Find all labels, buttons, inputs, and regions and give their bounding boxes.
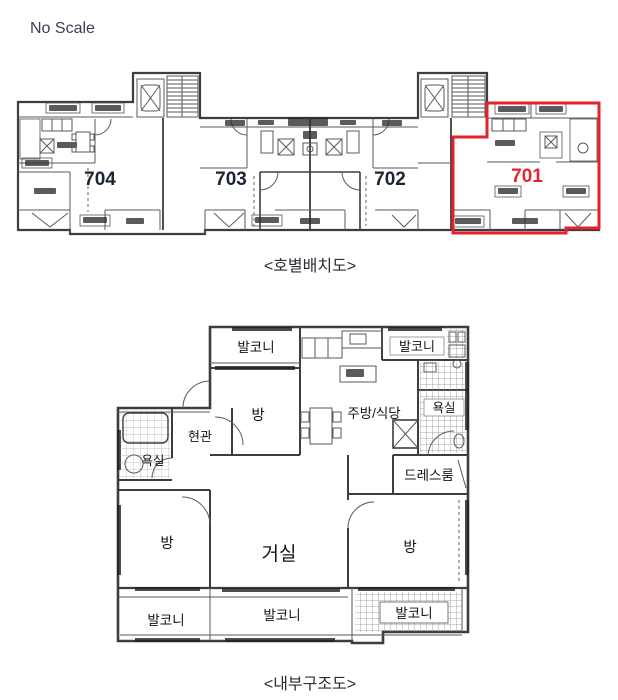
room-label-bathroom-left: 욕실	[141, 454, 164, 468]
kitchen-fixtures	[301, 331, 382, 444]
room-label-balcony-bottom-left: 발코니	[147, 613, 184, 628]
interior-caption: <내부구조도>	[264, 675, 356, 693]
room-label-balcony-bottom-right: 발코니	[395, 606, 432, 621]
unit-label-701: 701	[511, 166, 543, 187]
scale-note: No Scale	[30, 20, 95, 37]
interior-plan: 발코니 발코니 방 주방/식당 욕실 현관 욕실 드레스룸 방 거실 방 발코니…	[118, 327, 468, 693]
room-label-bedroom-right: 방	[403, 539, 416, 556]
balcony-labels	[80, 215, 538, 227]
duct-shaft	[393, 420, 418, 448]
room-labels: 발코니 발코니 방 주방/식당 욕실 현관 욕실 드레스룸 방 거실 방 발코니…	[141, 337, 464, 628]
room-label-entrance: 현관	[188, 429, 212, 444]
room-label-bedroom-left: 방	[160, 535, 173, 552]
unit-704-interior	[18, 103, 124, 212]
room-label-bedroom-top: 방	[251, 407, 264, 424]
room-label-balcony-top-left: 발코니	[237, 340, 274, 355]
floorplan-document: No Scale	[0, 0, 618, 700]
room-label-balcony-bottom-center: 발코니	[263, 608, 300, 623]
elevator-stairs-core-right	[421, 76, 485, 117]
room-label-living-room: 거실	[262, 543, 297, 565]
room-label-kitchen: 주방/식당	[347, 406, 400, 421]
balcony-bottom-right-labelbox: 발코니	[380, 602, 448, 623]
bathroom-right-labelbox: 욕실	[424, 399, 464, 416]
room-label-dress-room: 드레스룸	[404, 468, 454, 483]
unit-label-703: 703	[215, 169, 247, 190]
room-label-balcony-top-right: 발코니	[399, 339, 435, 354]
unit-layout-plan: 704 703 702 701 <호별배치도>	[18, 73, 599, 275]
unit-label-702: 702	[374, 169, 406, 190]
unit-layout-caption: <호별배치도>	[264, 257, 356, 275]
document-svg: No Scale	[0, 0, 618, 700]
room-label-bathroom-right: 욕실	[432, 401, 455, 415]
unit-701-interior	[492, 103, 597, 197]
balcony-top-right-labelbox: 발코니	[390, 337, 444, 355]
unit-label-704: 704	[84, 169, 116, 190]
elevator-stairs-core-left	[137, 76, 198, 117]
